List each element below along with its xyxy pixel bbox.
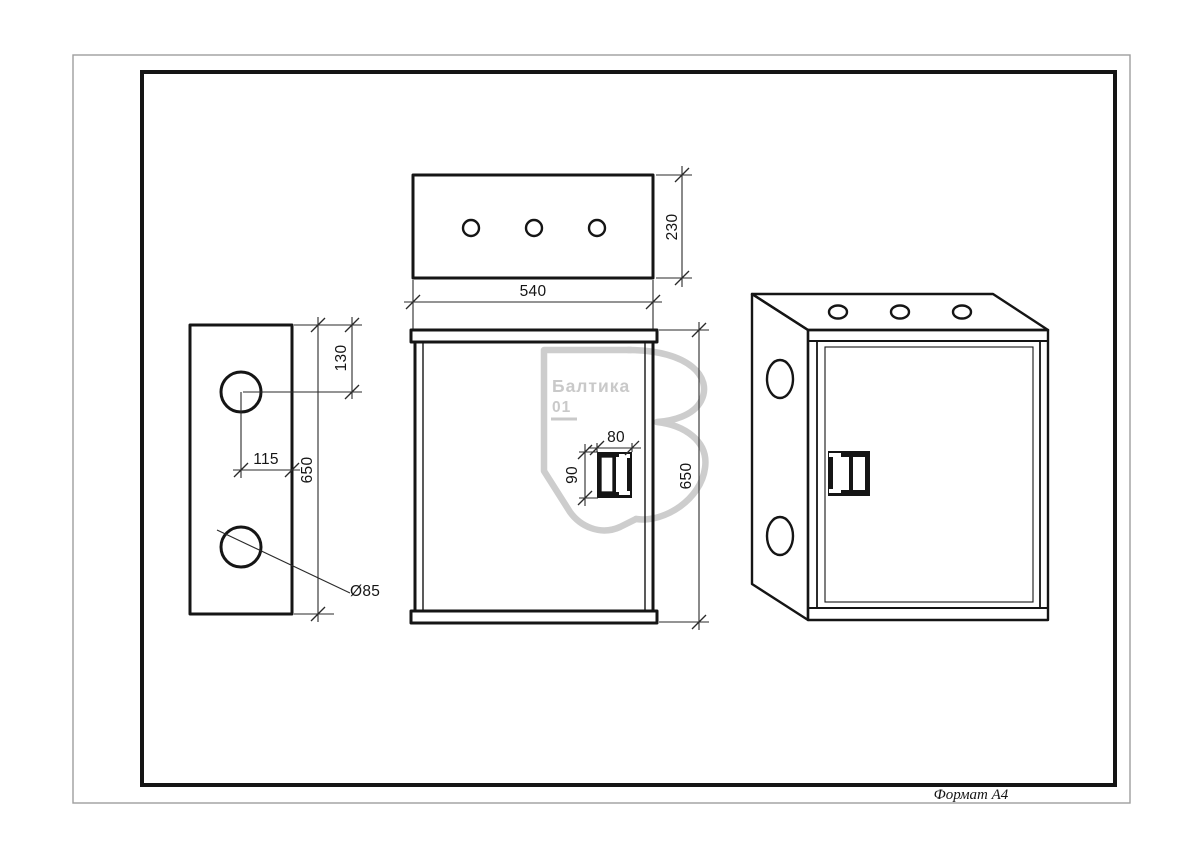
watermark-numeral-curve	[628, 350, 705, 519]
top-view-hole-3	[589, 220, 605, 236]
dim-650-side-label: 650	[299, 457, 316, 484]
dim-230: 230	[656, 166, 692, 287]
inner-border	[142, 72, 1115, 785]
front-bottom-cap	[411, 611, 657, 623]
side-view: 650 130 115 Ø85	[190, 317, 380, 622]
iso-handle-slot-right	[853, 457, 865, 490]
iso-handle-slot-left	[833, 457, 849, 490]
dim-650-side: 650	[299, 317, 325, 622]
handle-slot-right	[616, 457, 627, 492]
dim-diameter-85: Ø85	[217, 530, 380, 600]
drawing-border: Формат А4	[73, 55, 1130, 803]
side-view-hole-lower	[221, 527, 261, 567]
iso-side-hole-lower	[767, 517, 793, 555]
iso-top-hole-1	[829, 306, 847, 319]
watermark-number: 01	[552, 399, 571, 416]
dim-650-front-label: 650	[678, 463, 695, 490]
drawing-sheet: Формат А4 Балтика 01 230 540	[0, 0, 1200, 848]
dim-80: 80	[588, 429, 641, 455]
iso-top-hole-3	[953, 306, 971, 319]
iso-handle	[828, 451, 870, 496]
dim-230-label: 230	[664, 214, 681, 241]
outer-border	[73, 55, 1130, 803]
front-top-cap	[411, 330, 657, 342]
top-view-hole-1	[463, 220, 479, 236]
dim-540: 540	[404, 280, 662, 330]
handle-notch-top	[619, 454, 630, 458]
dim-80-label: 80	[607, 429, 625, 446]
dim-90-label: 90	[564, 466, 581, 484]
isometric-view	[752, 294, 1048, 620]
sheet-format-label: Формат А4	[934, 787, 1009, 803]
leader-line	[217, 530, 350, 593]
handle-slot-left	[601, 457, 613, 492]
iso-handle-notch-top	[829, 453, 841, 457]
dim-540-label: 540	[520, 283, 547, 300]
dim-85-label: Ø85	[350, 583, 380, 600]
iso-side-hole-upper	[767, 360, 793, 398]
dim-115: 115	[233, 451, 300, 477]
top-view-hole-2	[526, 220, 542, 236]
watermark-brand: Балтика	[552, 376, 630, 396]
dim-115-label: 115	[253, 451, 279, 468]
iso-handle-notch-bottom	[829, 489, 841, 493]
dim-130-label: 130	[333, 345, 350, 372]
iso-top-face	[752, 294, 1048, 330]
top-view: 230 540	[404, 166, 692, 330]
iso-top-hole-2	[891, 306, 909, 319]
front-handle	[597, 452, 632, 498]
technical-drawing-canvas: Формат А4 Балтика 01 230 540	[0, 0, 1200, 848]
dim-130: 130	[333, 317, 359, 399]
iso-left-face	[752, 294, 808, 620]
handle-notch-bottom	[619, 491, 630, 495]
top-view-outline	[413, 175, 653, 278]
dim-90: 90	[564, 444, 598, 506]
front-view: 80 90 650	[411, 322, 709, 630]
